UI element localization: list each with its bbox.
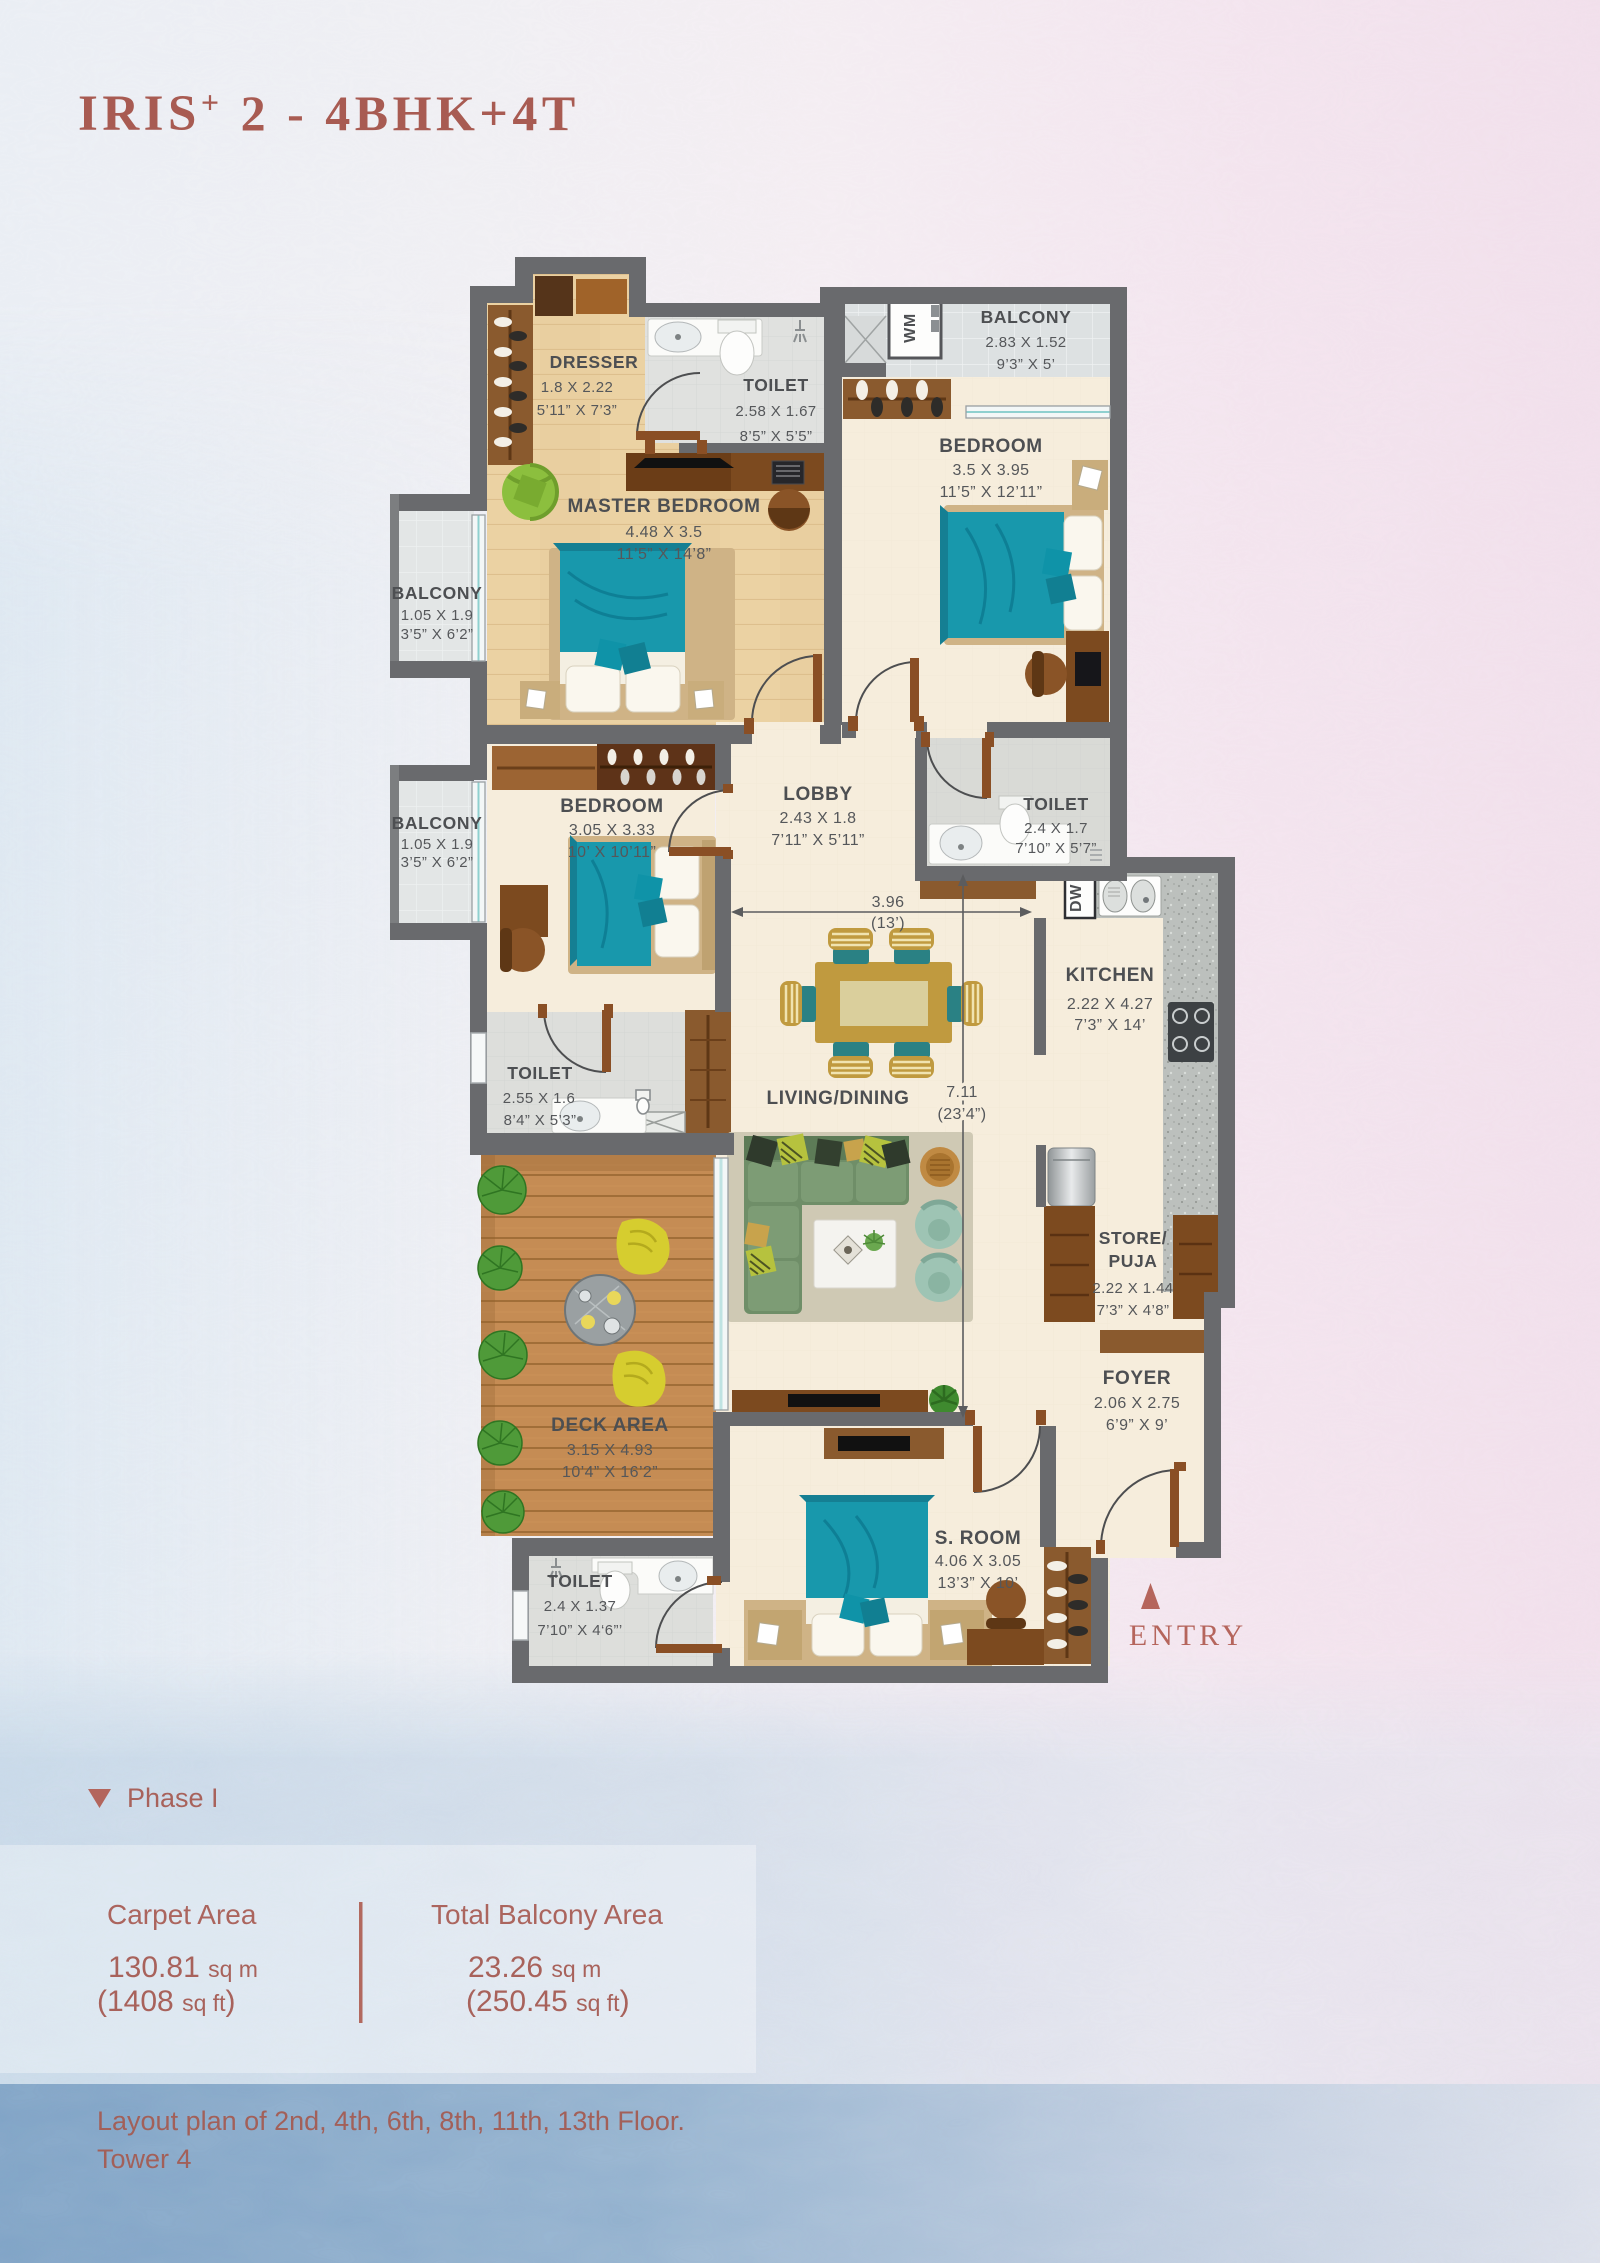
svg-text:BALCONY: BALCONY xyxy=(392,583,483,603)
svg-text:8’4” X 5’3”: 8’4” X 5’3” xyxy=(504,1112,577,1129)
svg-text:4.06 X 3.05: 4.06 X 3.05 xyxy=(935,1553,1021,1570)
svg-text:8’5” X 5’5”: 8’5” X 5’5” xyxy=(740,428,813,445)
svg-text:Carpet Area: Carpet Area xyxy=(107,1899,257,1930)
svg-text:4.48 X 3.5: 4.48 X 3.5 xyxy=(626,524,703,541)
svg-text:Tower 4: Tower 4 xyxy=(97,2144,192,2174)
svg-text:7’11” X 5’11”: 7’11” X 5’11” xyxy=(771,832,865,849)
svg-text:2.06 X 2.75: 2.06 X 2.75 xyxy=(1094,1395,1180,1412)
svg-text:(13’): (13’) xyxy=(871,915,905,932)
svg-text:LIVING/DINING: LIVING/DINING xyxy=(767,1088,910,1109)
svg-text:LOBBY: LOBBY xyxy=(783,784,853,805)
svg-text:BEDROOM: BEDROOM xyxy=(560,796,663,817)
svg-text:PUJA: PUJA xyxy=(1108,1251,1157,1271)
svg-text:DW: DW xyxy=(1068,884,1085,912)
svg-text:11’5” X 12’11”: 11’5” X 12’11” xyxy=(940,484,1043,501)
svg-text:13’3” X 10’: 13’3” X 10’ xyxy=(938,1575,1019,1592)
svg-text:TOILET: TOILET xyxy=(507,1063,573,1083)
svg-text:BALCONY: BALCONY xyxy=(392,813,483,833)
svg-text:2.83 X 1.52: 2.83 X 1.52 xyxy=(985,334,1066,351)
svg-text:MASTER BEDROOM: MASTER BEDROOM xyxy=(567,496,760,517)
svg-text:TOILET: TOILET xyxy=(743,375,809,395)
svg-text:DECK AREA: DECK AREA xyxy=(551,1415,669,1436)
svg-text:130.81 sq m: 130.81 sq m xyxy=(108,1951,258,1984)
svg-text:ENTRY: ENTRY xyxy=(1129,1619,1247,1652)
svg-text:DRESSER: DRESSER xyxy=(550,352,639,372)
svg-text:7’10” X 4‘6”’: 7’10” X 4‘6”’ xyxy=(537,1622,622,1639)
svg-text:7’3” X 14’: 7’3” X 14’ xyxy=(1074,1017,1146,1034)
svg-text:2.4 X 1.37: 2.4 X 1.37 xyxy=(544,1598,616,1615)
svg-text:KITCHEN: KITCHEN xyxy=(1066,965,1155,986)
svg-text:10’4” X 16’2”: 10’4” X 16’2” xyxy=(562,1464,658,1481)
svg-text:1.05 X 1.9: 1.05 X 1.9 xyxy=(401,607,473,624)
svg-text:3’5” X 6’2”: 3’5” X 6’2” xyxy=(401,626,474,643)
svg-text:9’3” X 5’: 9’3” X 5’ xyxy=(997,356,1056,373)
svg-text:STORE/: STORE/ xyxy=(1099,1228,1167,1248)
svg-text:7.11: 7.11 xyxy=(946,1084,978,1101)
svg-text:11’5” X 14’8”: 11’5” X 14’8” xyxy=(617,546,712,563)
svg-text:S. ROOM: S. ROOM xyxy=(935,1528,1022,1549)
svg-text:BALCONY: BALCONY xyxy=(981,307,1072,327)
svg-text:Total Balcony Area: Total Balcony Area xyxy=(431,1899,663,1930)
svg-text:BEDROOM: BEDROOM xyxy=(939,436,1042,457)
svg-text:2.22 X 1.44: 2.22 X 1.44 xyxy=(1092,1280,1173,1297)
svg-text:1.05 X 1.9: 1.05 X 1.9 xyxy=(401,836,473,853)
svg-text:Layout plan of 2nd, 4th, 6th,: Layout plan of 2nd, 4th, 6th, 8th, 11th,… xyxy=(97,2106,685,2136)
svg-text:FOYER: FOYER xyxy=(1103,1368,1171,1389)
svg-text:WM: WM xyxy=(902,313,919,343)
svg-text:2.55 X 1.6: 2.55 X 1.6 xyxy=(503,1090,575,1107)
svg-text:3’5” X 6’2”: 3’5” X 6’2” xyxy=(401,854,474,871)
svg-text:1.8 X 2.22: 1.8 X 2.22 xyxy=(541,379,613,396)
svg-text:10’ X 10’11”: 10’ X 10’11” xyxy=(568,844,656,861)
svg-text:(1408 sq ft): (1408 sq ft) xyxy=(97,1985,236,2018)
svg-text:TOILET: TOILET xyxy=(1023,794,1089,814)
svg-text:(23’4”): (23’4”) xyxy=(937,1106,986,1123)
svg-text:7’3” X 4’8”: 7’3” X 4’8” xyxy=(1097,1302,1170,1319)
svg-text:TOILET: TOILET xyxy=(547,1571,613,1591)
svg-text:Phase I: Phase I xyxy=(127,1783,219,1813)
svg-text:6’9” X 9’: 6’9” X 9’ xyxy=(1106,1417,1168,1434)
svg-text:IRIS+ 2 - 4BHK+4T: IRIS+ 2 - 4BHK+4T xyxy=(78,84,580,142)
svg-text:3.15 X 4.93: 3.15 X 4.93 xyxy=(567,1442,653,1459)
svg-text:7’10” X 5’7”: 7’10” X 5’7” xyxy=(1015,840,1097,857)
svg-text:3.96: 3.96 xyxy=(872,894,905,911)
svg-text:3.5 X 3.95: 3.5 X 3.95 xyxy=(953,462,1030,479)
svg-text:3.05 X 3.33: 3.05 X 3.33 xyxy=(569,822,655,839)
svg-text:2.43 X 1.8: 2.43 X 1.8 xyxy=(780,810,857,827)
svg-text:23.26 sq m: 23.26 sq m xyxy=(468,1951,601,1984)
svg-text:2.58 X 1.67: 2.58 X 1.67 xyxy=(735,403,816,420)
svg-text:2.22 X 4.27: 2.22 X 4.27 xyxy=(1067,996,1153,1013)
svg-text:5’11” X 7’3”: 5’11” X 7’3” xyxy=(537,402,617,419)
svg-text:(250.45 sq ft): (250.45 sq ft) xyxy=(466,1985,630,2018)
svg-text:2.4 X 1.7: 2.4 X 1.7 xyxy=(1024,820,1088,837)
